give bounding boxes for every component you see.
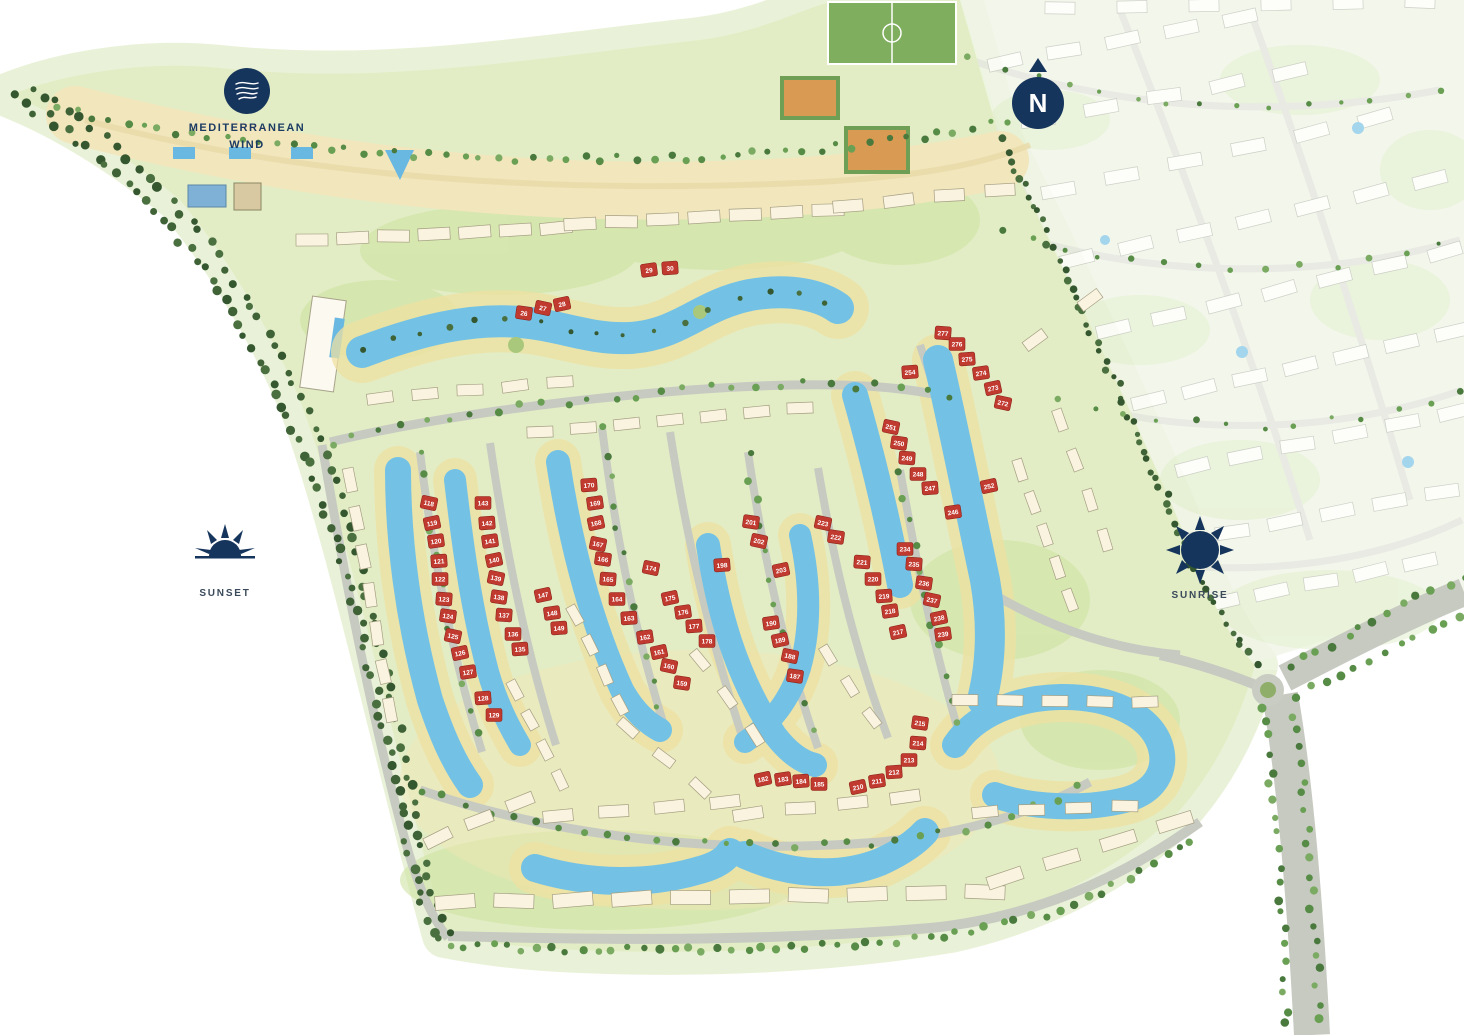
tree — [652, 679, 657, 684]
tree — [735, 152, 741, 158]
tree — [596, 948, 603, 955]
tree — [278, 352, 286, 360]
plot-marker-250[interactable]: 250 — [890, 435, 908, 450]
tree — [1165, 850, 1173, 858]
tree — [1437, 242, 1441, 246]
plot-marker-275[interactable]: 275 — [959, 352, 976, 366]
plot-marker-165[interactable]: 165 — [600, 572, 617, 586]
tree — [581, 829, 588, 836]
tree — [404, 775, 410, 781]
tree — [1367, 98, 1373, 104]
tree — [297, 393, 305, 401]
plot-marker-169[interactable]: 169 — [586, 495, 604, 510]
plot-marker-235[interactable]: 235 — [906, 557, 923, 571]
tree — [271, 380, 279, 388]
tree — [563, 156, 570, 163]
tree — [621, 333, 625, 337]
plot-marker-127[interactable]: 127 — [459, 664, 477, 679]
tree — [921, 136, 929, 144]
plot-marker-221[interactable]: 221 — [854, 555, 871, 569]
building — [605, 215, 637, 227]
tree — [935, 828, 940, 833]
tree — [172, 131, 179, 138]
tree — [1004, 119, 1010, 125]
tree — [708, 382, 714, 388]
tree — [202, 263, 209, 270]
tree — [614, 396, 621, 403]
tree — [1058, 258, 1064, 264]
tree — [561, 949, 567, 955]
tree — [438, 914, 447, 923]
tree — [47, 110, 55, 118]
plot-marker-177[interactable]: 177 — [686, 619, 703, 633]
tree — [1093, 406, 1098, 411]
plot-number: 249 — [901, 455, 913, 463]
tree — [887, 135, 893, 141]
plot-marker-26[interactable]: 26 — [515, 305, 533, 320]
plot-number: 143 — [478, 501, 489, 508]
tree — [1397, 406, 1403, 412]
tree — [424, 417, 430, 423]
plot-marker-214[interactable]: 214 — [910, 736, 927, 750]
plot-marker-277[interactable]: 277 — [935, 326, 952, 340]
tree — [1034, 207, 1040, 213]
tree — [152, 182, 162, 192]
tree — [1096, 348, 1102, 354]
plot-marker-276[interactable]: 276 — [949, 338, 965, 351]
plot-marker-136[interactable]: 136 — [505, 628, 521, 641]
tree — [1196, 263, 1202, 269]
tree — [257, 359, 264, 366]
tree — [1306, 874, 1313, 881]
plot-marker-248[interactable]: 248 — [910, 468, 926, 481]
tree — [362, 664, 369, 671]
plot-marker-164[interactable]: 164 — [609, 593, 625, 606]
tree — [189, 129, 196, 136]
tree — [229, 280, 237, 288]
plot-marker-247[interactable]: 247 — [922, 481, 939, 495]
plot-marker-162[interactable]: 162 — [636, 629, 654, 644]
plot-marker-149[interactable]: 149 — [551, 621, 568, 635]
plot-marker-135[interactable]: 135 — [512, 642, 529, 656]
plot-marker-124[interactable]: 124 — [439, 608, 457, 623]
tree — [22, 98, 31, 107]
tree — [317, 435, 324, 442]
tree — [538, 399, 545, 406]
building — [656, 413, 683, 427]
tree — [683, 157, 690, 164]
tree — [113, 143, 121, 151]
tree — [1224, 622, 1229, 627]
tree — [416, 899, 423, 906]
tree — [86, 125, 93, 132]
tree — [999, 227, 1006, 234]
plot-marker-185[interactable]: 185 — [811, 778, 827, 791]
tree — [1108, 881, 1114, 887]
tree — [475, 941, 481, 947]
tree — [426, 889, 434, 897]
tree — [1457, 388, 1464, 395]
tree — [1186, 839, 1193, 846]
tree — [419, 789, 426, 796]
tree — [530, 154, 537, 161]
tree — [801, 700, 807, 706]
plot-marker-236[interactable]: 236 — [915, 575, 933, 590]
plot-number: 184 — [795, 778, 807, 786]
tree — [392, 148, 397, 153]
plot-marker-239[interactable]: 239 — [934, 626, 952, 641]
tree — [569, 329, 574, 334]
tree — [313, 426, 319, 432]
plot-marker-30[interactable]: 30 — [662, 261, 679, 275]
tree — [622, 550, 627, 555]
tree — [1305, 905, 1314, 914]
tree — [1117, 380, 1124, 387]
tree — [891, 837, 898, 844]
tree — [754, 496, 762, 504]
plot-marker-213[interactable]: 213 — [901, 754, 917, 767]
plot-marker-201[interactable]: 201 — [742, 514, 760, 529]
tree — [171, 197, 178, 204]
tree — [402, 755, 410, 763]
tree — [150, 208, 157, 215]
tree — [1276, 845, 1284, 853]
tree — [679, 384, 685, 390]
tree — [370, 613, 377, 620]
tree — [979, 922, 988, 931]
tree — [1073, 295, 1079, 301]
tree — [334, 535, 342, 543]
building — [847, 886, 888, 902]
tree — [764, 149, 770, 155]
tree — [933, 128, 940, 135]
tree — [768, 289, 774, 295]
tree — [175, 210, 184, 219]
plot-marker-178[interactable]: 178 — [699, 635, 715, 648]
tree — [403, 850, 410, 857]
tree — [471, 317, 477, 323]
tree — [417, 842, 423, 848]
building — [543, 809, 574, 824]
tree — [580, 946, 588, 954]
tree — [313, 483, 321, 491]
tree — [744, 477, 752, 485]
tree — [969, 126, 976, 133]
tree — [791, 844, 798, 851]
tree — [651, 156, 659, 164]
plot-marker-187[interactable]: 187 — [786, 668, 804, 683]
tree — [728, 385, 734, 391]
tree — [210, 277, 217, 284]
tree — [898, 495, 905, 502]
tree — [410, 154, 417, 161]
building — [499, 223, 532, 237]
tree — [913, 542, 920, 549]
tree — [1300, 652, 1308, 660]
tree — [1136, 439, 1142, 445]
plot-number: 128 — [477, 695, 489, 703]
tree — [1258, 704, 1267, 713]
tree — [1234, 103, 1239, 108]
tree — [895, 468, 902, 475]
plot-number: 221 — [856, 559, 868, 567]
plot-marker-138[interactable]: 138 — [490, 589, 508, 604]
plot-number: 164 — [612, 597, 623, 604]
plot-marker-121[interactable]: 121 — [431, 554, 448, 568]
tree — [787, 942, 795, 950]
plot-marker-142[interactable]: 142 — [479, 516, 496, 530]
tree — [1293, 725, 1301, 733]
building — [671, 890, 711, 904]
tree — [328, 147, 335, 154]
tree — [1163, 102, 1168, 107]
building — [997, 695, 1023, 707]
tree — [306, 407, 313, 414]
tree — [75, 107, 81, 113]
tree — [801, 946, 808, 953]
building — [729, 208, 761, 221]
tree — [547, 155, 554, 162]
tree — [411, 864, 421, 874]
plot-marker-274[interactable]: 274 — [972, 365, 990, 380]
tree — [346, 598, 354, 606]
tree — [419, 450, 424, 455]
tree — [1347, 633, 1354, 640]
tree — [347, 533, 357, 543]
tree — [1095, 339, 1102, 346]
tree — [1266, 106, 1271, 111]
tree — [1316, 964, 1324, 972]
tree — [244, 294, 251, 301]
plot-marker-166[interactable]: 166 — [594, 551, 612, 566]
tree — [460, 945, 467, 952]
tree — [53, 104, 60, 111]
tree — [1382, 650, 1389, 657]
tree — [821, 839, 828, 846]
tree — [1350, 665, 1357, 672]
tree — [412, 799, 418, 805]
tree — [447, 324, 454, 331]
building — [646, 213, 678, 226]
tree — [215, 250, 223, 258]
plot-marker-220[interactable]: 220 — [865, 573, 881, 586]
tree — [1063, 248, 1068, 253]
tree — [1336, 671, 1345, 680]
plot-marker-122[interactable]: 122 — [432, 573, 448, 586]
tree — [766, 578, 771, 583]
tree — [400, 809, 408, 817]
plot-marker-218[interactable]: 218 — [881, 603, 899, 618]
tree — [851, 942, 859, 950]
tree — [1120, 411, 1126, 417]
tree — [783, 148, 788, 153]
tree — [1429, 625, 1438, 634]
tree — [811, 727, 817, 733]
tree — [194, 258, 201, 265]
tree — [609, 473, 615, 479]
plot-marker-120[interactable]: 120 — [427, 533, 445, 548]
tree — [422, 872, 430, 880]
building — [1019, 804, 1045, 816]
tree — [1185, 549, 1191, 555]
tree — [698, 156, 705, 163]
tree — [1026, 195, 1032, 201]
tree — [222, 295, 232, 305]
tree — [1277, 879, 1284, 886]
tree — [160, 217, 168, 225]
tree — [614, 153, 619, 158]
building — [1132, 696, 1158, 708]
building — [570, 422, 597, 435]
plot-marker-170[interactable]: 170 — [581, 478, 598, 492]
tree — [475, 729, 483, 737]
plot-marker-234[interactable]: 234 — [897, 543, 913, 556]
plot-marker-246[interactable]: 246 — [944, 504, 962, 519]
tree — [193, 226, 200, 233]
tree — [438, 791, 446, 799]
tree — [288, 380, 294, 386]
tree — [349, 585, 356, 592]
building — [613, 417, 640, 431]
tree — [1282, 958, 1289, 965]
plot-marker-198[interactable]: 198 — [714, 558, 731, 572]
tree — [658, 387, 666, 395]
tree — [1056, 907, 1064, 915]
tree — [282, 412, 289, 419]
tree — [721, 154, 726, 159]
plot-marker-176[interactable]: 176 — [674, 604, 692, 619]
tree — [1277, 908, 1283, 914]
tree — [1011, 168, 1017, 174]
tree — [435, 935, 442, 942]
tree — [423, 860, 430, 867]
tree — [669, 152, 676, 159]
tree — [1055, 396, 1061, 402]
tree — [1281, 1018, 1290, 1027]
plot-marker-183[interactable]: 183 — [774, 771, 792, 786]
building — [418, 227, 451, 241]
tree — [1404, 251, 1410, 257]
building — [412, 387, 439, 400]
tree — [1339, 100, 1343, 104]
plot-marker-219[interactable]: 219 — [876, 589, 893, 603]
tree — [819, 149, 825, 155]
tree — [1193, 416, 1200, 423]
tree — [1136, 97, 1141, 102]
tree — [208, 237, 216, 245]
plot-marker-128[interactable]: 128 — [475, 691, 492, 705]
tree — [728, 947, 735, 954]
plot-marker-143[interactable]: 143 — [475, 497, 491, 510]
tree — [1292, 694, 1300, 702]
tree — [1174, 529, 1181, 536]
tree — [1085, 892, 1094, 901]
tree — [173, 239, 181, 247]
plot-marker-123[interactable]: 123 — [436, 592, 453, 606]
building — [972, 805, 999, 819]
tree — [748, 147, 755, 154]
plot-marker-184[interactable]: 184 — [793, 774, 810, 788]
tree — [341, 145, 346, 150]
plot-marker-163[interactable]: 163 — [621, 611, 638, 625]
tree — [1042, 241, 1050, 249]
tree — [375, 687, 383, 695]
plot-marker-137[interactable]: 137 — [496, 608, 513, 622]
tree — [510, 813, 517, 820]
tree — [599, 423, 606, 430]
tree — [271, 342, 278, 349]
building — [743, 405, 770, 419]
tree — [1312, 982, 1318, 988]
plot-marker-249[interactable]: 249 — [899, 451, 916, 465]
tree — [271, 390, 281, 400]
tree — [610, 503, 616, 509]
tree — [1098, 891, 1106, 899]
plot-marker-222[interactable]: 222 — [827, 529, 845, 544]
plot-number: 135 — [514, 646, 526, 654]
tree — [772, 840, 779, 847]
plot-number: 277 — [937, 330, 949, 338]
tree — [1279, 989, 1286, 996]
plot-marker-212[interactable]: 212 — [886, 765, 903, 779]
building — [336, 231, 369, 245]
plot-marker-211[interactable]: 211 — [868, 773, 886, 788]
tree — [305, 457, 314, 466]
plot-marker-129[interactable]: 129 — [486, 709, 502, 722]
plot-marker-190[interactable]: 190 — [762, 615, 780, 630]
tree — [954, 719, 961, 726]
tree — [1311, 648, 1319, 656]
tree — [944, 673, 950, 679]
plot-number: 234 — [900, 547, 911, 554]
tree — [468, 708, 474, 714]
tree — [866, 139, 873, 146]
plot-marker-141[interactable]: 141 — [481, 533, 499, 548]
tree — [1044, 227, 1050, 233]
tree — [1315, 1014, 1324, 1023]
tree — [1438, 88, 1444, 94]
plot-marker-254[interactable]: 254 — [902, 365, 919, 379]
tree — [672, 838, 680, 846]
building — [564, 217, 597, 231]
tree — [504, 942, 510, 948]
tree — [819, 940, 826, 947]
tree — [360, 151, 367, 158]
plot-marker-29[interactable]: 29 — [640, 262, 658, 277]
plot-number: 276 — [952, 342, 963, 349]
tree — [417, 889, 423, 895]
tree — [1083, 322, 1089, 328]
plot-marker-148[interactable]: 148 — [543, 605, 561, 620]
tree — [778, 384, 784, 390]
tree — [1274, 897, 1283, 906]
tree — [876, 940, 882, 946]
tree — [800, 378, 805, 383]
tree — [1272, 815, 1278, 821]
tree — [935, 640, 943, 648]
tree — [447, 929, 454, 936]
masterplan-canvas: 2627282930118119120121122123124125126127… — [0, 0, 1464, 1035]
tree — [555, 825, 562, 832]
tree — [595, 331, 599, 335]
tree — [940, 934, 948, 942]
tree — [447, 417, 452, 422]
tree — [539, 319, 543, 323]
plot-marker-159[interactable]: 159 — [673, 675, 691, 690]
tree — [1289, 714, 1297, 722]
tree — [1063, 266, 1070, 273]
plot-marker-215[interactable]: 215 — [911, 715, 929, 730]
